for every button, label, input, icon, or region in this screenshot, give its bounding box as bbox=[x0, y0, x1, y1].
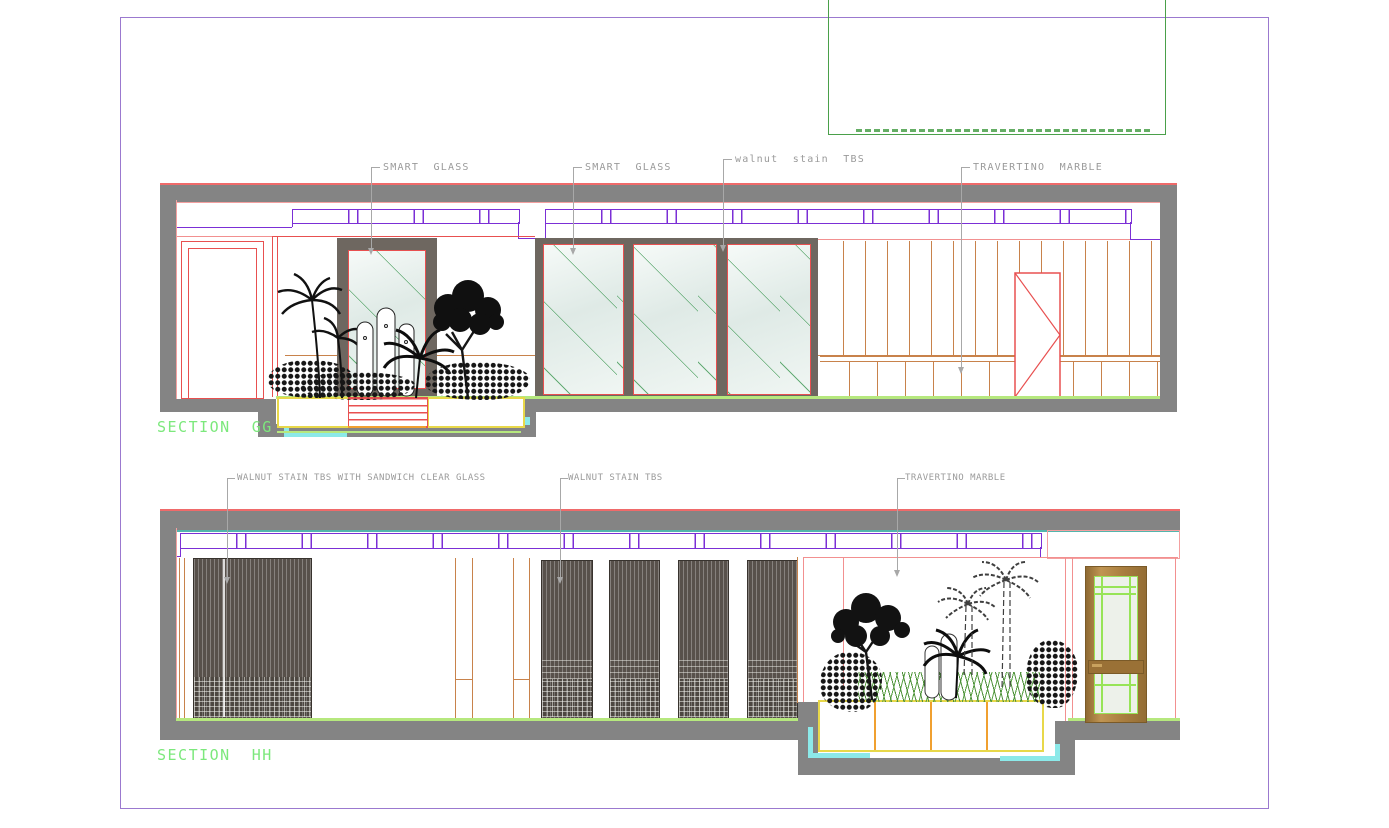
hh-label-walnut-sandwich: WALNUT STAIN TBS WITH SANDWICH CLEAR GLA… bbox=[237, 473, 486, 483]
hh-joint-2a bbox=[513, 558, 514, 718]
reference-caption bbox=[856, 129, 1150, 132]
gg-travertine-base bbox=[822, 362, 1158, 396]
gg-label1-leader bbox=[371, 167, 372, 253]
hh-panel-a-grid bbox=[194, 677, 311, 717]
hh-panel3-grid bbox=[679, 679, 728, 717]
gg-label3-leader bbox=[723, 159, 724, 250]
hh-door-handle bbox=[1092, 664, 1102, 667]
hh-slatted-panel-a bbox=[193, 558, 312, 720]
hh-floor-left bbox=[160, 721, 808, 740]
gg-label4-arrow bbox=[958, 367, 964, 377]
hh-door-lock-rail bbox=[1088, 660, 1144, 674]
hh-walnut-panel-1 bbox=[541, 560, 593, 720]
reference-box bbox=[828, 0, 1166, 135]
hh-panel2-grid bbox=[610, 679, 659, 717]
gg-glass3-pane-1 bbox=[543, 244, 624, 395]
hh-panel4-lines bbox=[748, 657, 797, 679]
gg-label2-tick bbox=[573, 167, 582, 168]
gg-ceiling-step-right-h bbox=[1130, 239, 1162, 240]
hh-label3-tick bbox=[897, 478, 905, 479]
hh-door-mullion-h1 bbox=[1094, 586, 1136, 588]
hh-panel4-grid bbox=[748, 679, 797, 717]
gg-label2-arrow bbox=[570, 248, 576, 258]
gg-swing-door-symbol bbox=[1014, 272, 1062, 399]
gg-glass3-pane1-reflections bbox=[544, 245, 623, 394]
hh-panel1-lines bbox=[542, 657, 592, 679]
hh-label1-arrow bbox=[224, 577, 230, 587]
hh-label2-leader bbox=[560, 478, 561, 582]
gg-steps-base-line bbox=[348, 426, 426, 428]
hh-joint-1a bbox=[455, 558, 456, 718]
hh-walnut-panel-4 bbox=[747, 560, 798, 720]
hh-label1-tick bbox=[227, 478, 235, 479]
hh-ceiling-band bbox=[180, 533, 1042, 549]
gg-wall-top-line-right bbox=[818, 239, 1162, 240]
hh-hatched-palm-tall bbox=[972, 562, 1038, 598]
gg-ceiling-band-1 bbox=[292, 209, 520, 224]
gg-travertine-rail-1 bbox=[820, 356, 1160, 357]
drawing-canvas: SMART GLASS SMART GLASS walnut stain TBS… bbox=[0, 0, 1389, 828]
hh-shrubs-left bbox=[820, 652, 882, 712]
gg-glass3-pane-2 bbox=[633, 244, 717, 395]
gg-ceiling-step-mid-v2 bbox=[545, 222, 546, 238]
hh-ceiling-slab bbox=[160, 509, 1180, 532]
hh-palm-tall-trunk bbox=[1002, 582, 1010, 690]
hh-joint-1b bbox=[472, 558, 473, 718]
gg-palm-fronds bbox=[278, 274, 362, 348]
gg-travertine-upper bbox=[822, 241, 1158, 356]
gg-floor-right bbox=[535, 399, 1160, 412]
gg-ceiling-step-left-h bbox=[163, 227, 292, 228]
gg-shrubs-right bbox=[425, 362, 530, 400]
gg-label3-tick bbox=[723, 159, 732, 160]
hh-door-mullion-h3 bbox=[1094, 684, 1136, 686]
gg-label1-tick bbox=[371, 167, 380, 168]
hh-left-wall-column bbox=[160, 528, 177, 740]
gg-label-smart-glass-2: SMART GLASS bbox=[585, 162, 672, 173]
gg-label-travertino: TRAVERTINO MARBLE bbox=[973, 162, 1103, 173]
hh-joint-1-tick bbox=[455, 679, 472, 680]
hh-label1-leader bbox=[227, 478, 228, 582]
hh-walnut-panel-2 bbox=[609, 560, 660, 720]
gg-label3-arrow bbox=[720, 245, 726, 255]
gg-glass3-pane2-reflections bbox=[634, 245, 716, 394]
hh-walnut-panel-3 bbox=[678, 560, 729, 720]
hh-label3-arrow bbox=[894, 570, 900, 580]
gg-glass3-pane3-reflections bbox=[728, 245, 810, 394]
hh-alcove-red-l1 bbox=[803, 557, 804, 702]
hh-joint-2-tick bbox=[513, 679, 529, 680]
gg-right-wall-column bbox=[1160, 200, 1177, 412]
gg-label4-leader bbox=[961, 167, 962, 372]
hh-section-title: SECTION HH bbox=[157, 746, 273, 764]
gg-label-smart-glass-1: SMART GLASS bbox=[383, 162, 470, 173]
hh-label2-arrow bbox=[557, 577, 563, 587]
hh-label2-tick bbox=[560, 478, 568, 479]
gg-shrubs-mid bbox=[300, 372, 415, 400]
gg-label-walnut: walnut stain TBS bbox=[735, 154, 865, 165]
gg-ceiling-band-2 bbox=[545, 209, 1132, 224]
hh-floor-right bbox=[1068, 721, 1180, 740]
hh-joint-0a bbox=[179, 558, 180, 718]
gg-label4-tick bbox=[961, 167, 970, 168]
hh-door-bay-band bbox=[1047, 530, 1180, 559]
hh-label-travertino: TRAVERTINO MARBLE bbox=[905, 473, 1006, 483]
hh-door-mullion-v2 bbox=[1129, 576, 1131, 712]
hh-door-mullion-v1 bbox=[1101, 576, 1103, 712]
gg-label2-leader bbox=[573, 167, 574, 253]
hh-panel3-lines bbox=[679, 657, 728, 679]
gg-opening-top-line bbox=[272, 236, 535, 237]
hh-hatched-palm-short bbox=[938, 588, 996, 620]
hh-shrubs-right bbox=[1026, 640, 1078, 708]
gg-label1-arrow bbox=[368, 248, 374, 258]
gg-pit-floor-line bbox=[277, 431, 521, 433]
gg-door-inner bbox=[188, 248, 257, 398]
hh-joint-0b bbox=[184, 558, 185, 718]
gg-glass3-pane-3 bbox=[727, 244, 811, 395]
hh-door-flank-right bbox=[1175, 557, 1176, 720]
hh-alcove-orange-l bbox=[797, 557, 798, 703]
hh-label-walnut: WALNUT STAIN TBS bbox=[568, 473, 663, 483]
gg-section-title: SECTION GG bbox=[157, 418, 273, 436]
hh-joint-2b bbox=[529, 558, 530, 718]
gg-ceiling-step-right-v bbox=[1130, 222, 1131, 240]
gg-left-wall-column bbox=[160, 200, 177, 400]
hh-label3-leader bbox=[897, 478, 898, 575]
hh-panel2-lines bbox=[610, 657, 659, 679]
hh-door-mullion-h2 bbox=[1094, 593, 1136, 595]
hh-panel1-grid bbox=[542, 679, 592, 717]
